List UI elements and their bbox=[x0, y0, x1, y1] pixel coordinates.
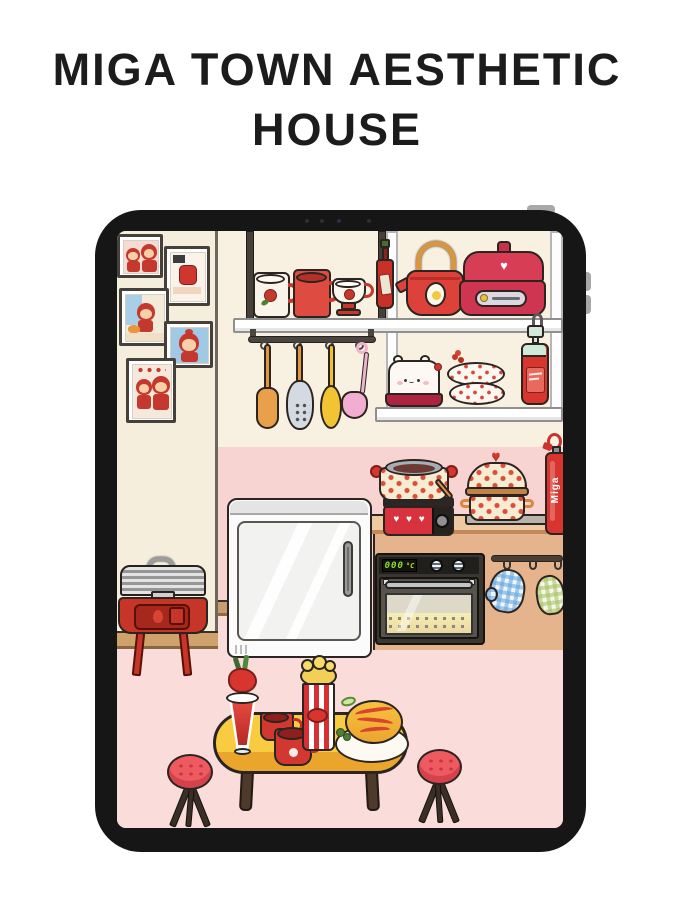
decor bbox=[417, 379, 420, 382]
decor bbox=[432, 291, 441, 300]
decor bbox=[397, 381, 403, 385]
toaster-knob bbox=[434, 363, 442, 371]
character-figure bbox=[136, 379, 152, 395]
hearts-icon: ♥ ♥ ♥ bbox=[389, 515, 431, 525]
oven-display: 000 °C bbox=[382, 559, 417, 572]
tablet-frame: ♥ bbox=[95, 210, 586, 852]
smoothie-rim bbox=[226, 692, 259, 704]
rice-cooker-body[interactable] bbox=[459, 280, 546, 316]
cat-figure bbox=[128, 325, 140, 333]
red-stool-left[interactable] bbox=[167, 754, 213, 790]
decor bbox=[256, 274, 285, 284]
spoon-handle[interactable] bbox=[328, 344, 335, 389]
toaster-base bbox=[385, 393, 443, 407]
rail-hook-icon bbox=[529, 561, 537, 570]
decor bbox=[480, 294, 488, 302]
teapot-handle bbox=[416, 241, 456, 273]
stove-knob[interactable] bbox=[435, 514, 449, 528]
decor bbox=[179, 265, 197, 285]
wooden-spatula[interactable] bbox=[256, 387, 279, 429]
page-title: MIGA TOWN AESTHETIC HOUSE bbox=[17, 40, 657, 160]
oven-display-unit: °C bbox=[406, 562, 414, 570]
decor bbox=[492, 297, 520, 300]
upper-shelf bbox=[233, 318, 563, 333]
decor bbox=[181, 352, 198, 362]
cup-base bbox=[336, 309, 361, 316]
rice-cooker-lid[interactable]: ♥ bbox=[463, 251, 544, 282]
decor bbox=[289, 748, 298, 757]
camera-dot-icon bbox=[320, 219, 324, 223]
rail-hook-icon bbox=[554, 561, 562, 570]
mitt-rail bbox=[491, 555, 563, 562]
hot-sauce-bottle[interactable] bbox=[376, 259, 394, 309]
decor bbox=[136, 367, 166, 373]
decor bbox=[423, 381, 429, 385]
rose-icon bbox=[344, 289, 355, 300]
photo-frame-couple[interactable] bbox=[117, 234, 163, 278]
decor bbox=[393, 464, 435, 473]
photo-frame-family[interactable] bbox=[126, 358, 176, 423]
red-teapot[interactable] bbox=[406, 270, 464, 316]
pot-handle bbox=[524, 499, 534, 508]
sensor-dot-icon bbox=[367, 219, 371, 223]
front-camera-icon bbox=[337, 219, 341, 223]
popcorn-kernel bbox=[324, 660, 336, 672]
decor bbox=[142, 260, 157, 272]
character-figure bbox=[126, 248, 140, 262]
bear-toaster[interactable] bbox=[388, 360, 440, 396]
decor bbox=[379, 273, 393, 295]
oven-display-value: 000 bbox=[385, 561, 404, 571]
smoothie-berry bbox=[228, 668, 257, 693]
character-figure bbox=[179, 333, 199, 353]
cup-handle bbox=[364, 283, 374, 298]
leaf-icon bbox=[260, 298, 269, 306]
character-figure bbox=[152, 376, 170, 394]
teacup-red-rose[interactable] bbox=[332, 278, 366, 304]
decor bbox=[153, 394, 169, 410]
decor bbox=[263, 712, 289, 723]
decor bbox=[230, 501, 368, 515]
popcorn-box[interactable] bbox=[302, 683, 335, 751]
lidded-pot[interactable] bbox=[469, 495, 525, 521]
decor bbox=[347, 547, 349, 591]
tablet-mockup: ♥ bbox=[95, 210, 586, 852]
decor bbox=[126, 333, 165, 342]
decor bbox=[404, 379, 407, 382]
photo-picture bbox=[132, 364, 172, 419]
built-in-oven[interactable]: 000 °C bbox=[375, 553, 485, 645]
table-leg bbox=[239, 770, 254, 812]
mug-red[interactable] bbox=[293, 269, 331, 318]
portable-stove[interactable]: ♥ ♥ ♥ bbox=[383, 506, 454, 536]
photo-frame-window[interactable] bbox=[119, 288, 169, 346]
turner-handle[interactable] bbox=[296, 344, 303, 384]
decor bbox=[137, 395, 151, 409]
slotted-turner[interactable] bbox=[286, 380, 314, 430]
decor bbox=[138, 320, 153, 332]
heart-icon: ♥ bbox=[495, 259, 513, 272]
decor bbox=[426, 757, 455, 773]
ladle-handle[interactable] bbox=[360, 352, 369, 394]
charcoal-grill[interactable] bbox=[118, 597, 208, 634]
pot-opening bbox=[385, 459, 443, 476]
mini-fridge[interactable] bbox=[227, 498, 372, 658]
pink-ladle[interactable] bbox=[341, 391, 368, 419]
photo-picture bbox=[170, 252, 206, 302]
broccoli bbox=[343, 733, 351, 741]
spatula-handle[interactable] bbox=[264, 344, 271, 391]
decor bbox=[410, 277, 460, 280]
lower-shelf bbox=[375, 407, 563, 422]
red-stool-right[interactable] bbox=[417, 749, 462, 785]
decor bbox=[523, 345, 546, 357]
game-screen: ♥ bbox=[117, 231, 563, 828]
decor bbox=[389, 595, 433, 631]
ketchup-pump-bottle[interactable] bbox=[521, 343, 549, 405]
smoothie-foot bbox=[234, 748, 251, 755]
flower-icon bbox=[452, 354, 458, 360]
decor bbox=[176, 762, 206, 778]
oven-door-handle[interactable] bbox=[385, 581, 473, 589]
yellow-spoon[interactable] bbox=[320, 385, 342, 429]
oven-mitt-blue-thumb bbox=[485, 587, 498, 602]
popcorn-logo bbox=[307, 708, 328, 723]
photo-picture bbox=[125, 294, 165, 342]
decor bbox=[173, 287, 201, 294]
decor bbox=[239, 523, 359, 639]
table-leg bbox=[365, 770, 380, 812]
decor bbox=[127, 261, 140, 272]
character-figure bbox=[137, 303, 155, 321]
character-figure bbox=[141, 244, 157, 260]
photo-picture bbox=[123, 240, 159, 274]
camera-dot-icon bbox=[305, 219, 309, 223]
flame-icon bbox=[153, 610, 163, 623]
decor bbox=[294, 402, 310, 424]
fridge-vent bbox=[235, 645, 247, 654]
decor bbox=[173, 255, 185, 263]
dotted-plate[interactable] bbox=[449, 382, 505, 405]
fire-extinguisher-label: Miga bbox=[549, 474, 563, 506]
oven-knob[interactable] bbox=[452, 559, 465, 572]
mug-white-rose[interactable] bbox=[253, 272, 290, 318]
oven-knob[interactable] bbox=[430, 559, 443, 572]
decor bbox=[335, 280, 361, 288]
decor bbox=[296, 272, 327, 283]
decor bbox=[169, 607, 185, 625]
decor bbox=[409, 380, 414, 383]
photo-frame-kitchen[interactable] bbox=[164, 246, 210, 306]
fridge-door[interactable] bbox=[237, 521, 361, 641]
